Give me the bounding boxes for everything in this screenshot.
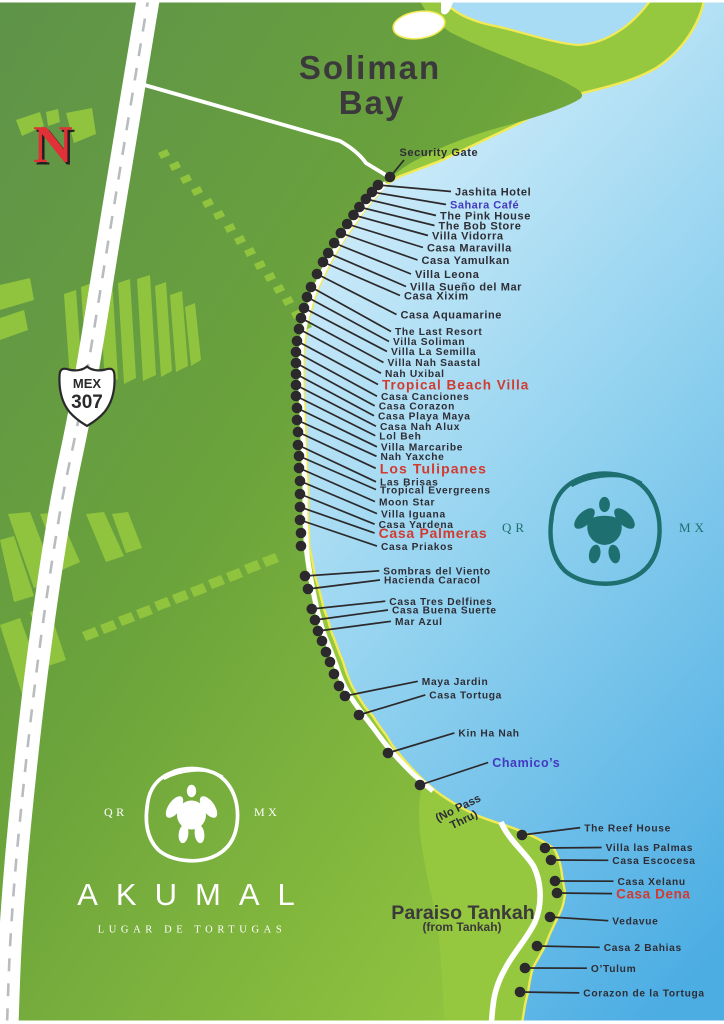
svg-text:Casa Tortuga: Casa Tortuga bbox=[429, 691, 502, 702]
svg-text:The Reef House: The Reef House bbox=[584, 823, 671, 834]
svg-text:Casa Escocesa: Casa Escocesa bbox=[612, 856, 695, 867]
svg-text:(from Tankah): (from Tankah) bbox=[422, 920, 501, 934]
svg-text:Villa Leona: Villa Leona bbox=[415, 269, 480, 281]
svg-text:Casa Dena: Casa Dena bbox=[616, 887, 690, 902]
svg-text:Villa Vidorra: Villa Vidorra bbox=[432, 231, 504, 243]
svg-text:Bay: Bay bbox=[339, 84, 406, 121]
svg-text:O’Tulum: O’Tulum bbox=[591, 964, 636, 975]
svg-text:Casa Buena Suerte: Casa Buena Suerte bbox=[392, 606, 497, 617]
svg-text:Villa Nah Saastal: Villa Nah Saastal bbox=[388, 358, 481, 369]
svg-text:Vedavue: Vedavue bbox=[612, 916, 658, 927]
svg-text:307: 307 bbox=[71, 392, 103, 413]
svg-text:Casa Playa Maya: Casa Playa Maya bbox=[378, 412, 471, 423]
svg-text:Security Gate: Security Gate bbox=[400, 147, 479, 159]
svg-text:Jashita Hotel: Jashita Hotel bbox=[455, 187, 531, 199]
svg-text:MEX: MEX bbox=[73, 376, 102, 391]
svg-text:Chamico’s: Chamico’s bbox=[492, 756, 560, 770]
svg-text:Casa Priakos: Casa Priakos bbox=[381, 542, 453, 553]
svg-text:Villa Iguana: Villa Iguana bbox=[381, 509, 446, 520]
svg-text:Tropical Beach Villa: Tropical Beach Villa bbox=[382, 377, 529, 392]
svg-text:MX: MX bbox=[679, 520, 708, 535]
svg-text:Lol Beh: Lol Beh bbox=[379, 432, 421, 443]
svg-text:Soliman: Soliman bbox=[299, 49, 441, 86]
svg-text:AKUMAL: AKUMAL bbox=[77, 877, 312, 912]
svg-text:Villa La Semilla: Villa La Semilla bbox=[391, 347, 476, 358]
svg-text:Tropical Evergreens: Tropical Evergreens bbox=[380, 485, 491, 496]
svg-text:N: N bbox=[33, 115, 73, 174]
svg-text:QR: QR bbox=[502, 520, 528, 535]
svg-text:Moon Star: Moon Star bbox=[379, 497, 435, 508]
svg-text:LUGAR DE TORTUGAS: LUGAR DE TORTUGAS bbox=[98, 925, 287, 936]
svg-text:Casa Maravilla: Casa Maravilla bbox=[427, 243, 512, 255]
svg-text:Villa las Palmas: Villa las Palmas bbox=[606, 843, 693, 854]
svg-text:Casa Yamulkan: Casa Yamulkan bbox=[422, 255, 510, 267]
svg-text:Maya Jardin: Maya Jardin bbox=[422, 677, 489, 688]
svg-text:Casa Palmeras: Casa Palmeras bbox=[379, 525, 488, 541]
svg-text:Mar Azul: Mar Azul bbox=[395, 617, 443, 628]
svg-text:Casa Aquamarine: Casa Aquamarine bbox=[401, 310, 503, 322]
svg-text:Kin Ha Nah: Kin Ha Nah bbox=[458, 729, 519, 740]
svg-text:Corazon de la Tortuga: Corazon de la Tortuga bbox=[583, 989, 704, 1000]
svg-text:Los Tulipanes: Los Tulipanes bbox=[380, 460, 487, 476]
svg-text:Casa Xixim: Casa Xixim bbox=[404, 291, 469, 303]
svg-text:Casa 2 Bahias: Casa 2 Bahias bbox=[604, 943, 682, 954]
svg-text:Hacienda Caracol: Hacienda Caracol bbox=[384, 576, 481, 587]
svg-text:QR: QR bbox=[104, 805, 128, 819]
svg-text:MX: MX bbox=[254, 805, 280, 819]
